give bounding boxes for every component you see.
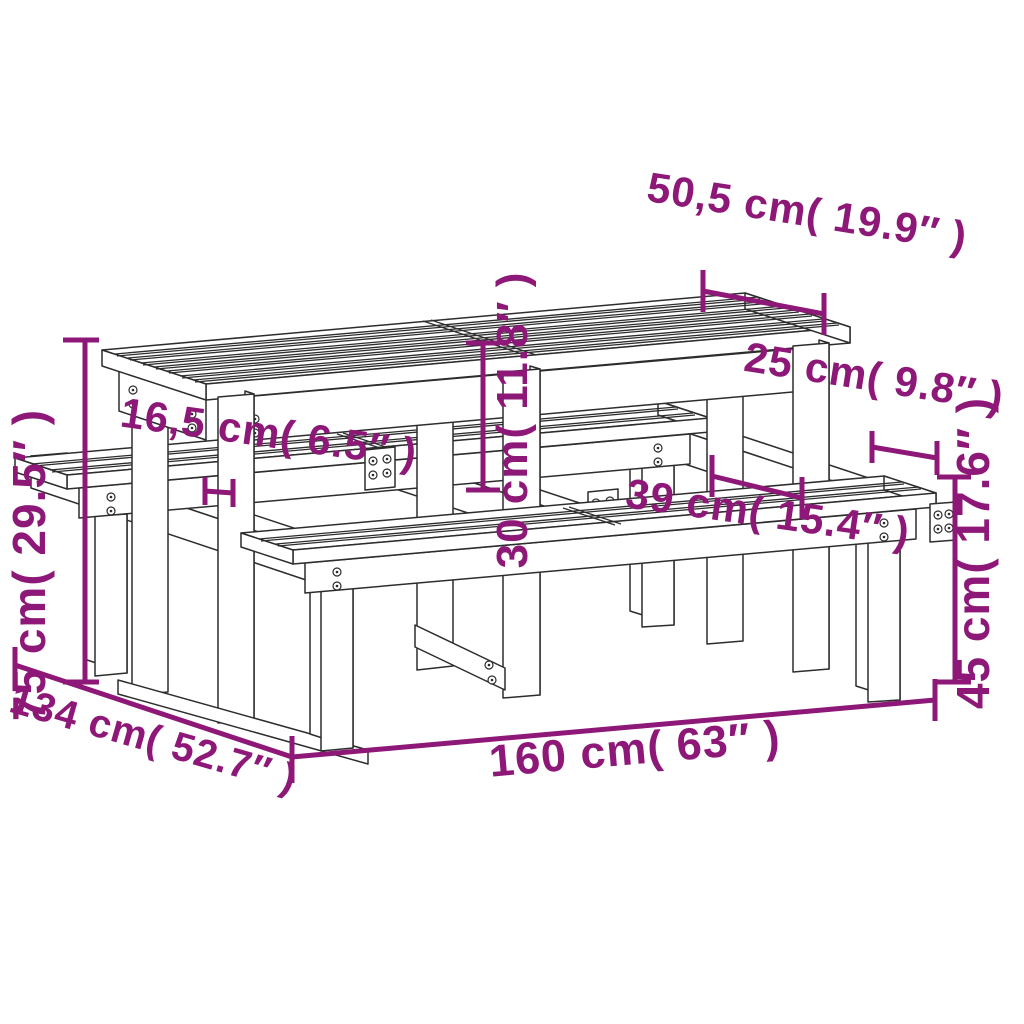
dimension-bench-height: 45 cm( 17.6″ ) <box>937 397 999 709</box>
dimension-diagram-page: 50,5 cm( 19.9″ ) 25 cm( 9.8″ ) 16,5 cm( … <box>0 0 1024 1024</box>
dimension-label-seat-to-tabletop: 30 cm( 11.8″ ) <box>488 272 537 569</box>
dimension-total-length: 160 cm( 63″ ) <box>292 679 935 787</box>
dimension-line-bench-seat-depth <box>872 431 937 475</box>
picnic-table-dimension-diagram: 50,5 cm( 19.9″ ) 25 cm( 9.8″ ) 16,5 cm( … <box>0 0 1024 1024</box>
dimension-label-total-length: 160 cm( 63″ ) <box>487 710 783 786</box>
dimension-label-bench-height: 45 cm( 17.6″ ) <box>947 397 999 709</box>
dimension-label-tabletop-depth: 50,5 cm( 19.9″ ) <box>644 163 971 260</box>
